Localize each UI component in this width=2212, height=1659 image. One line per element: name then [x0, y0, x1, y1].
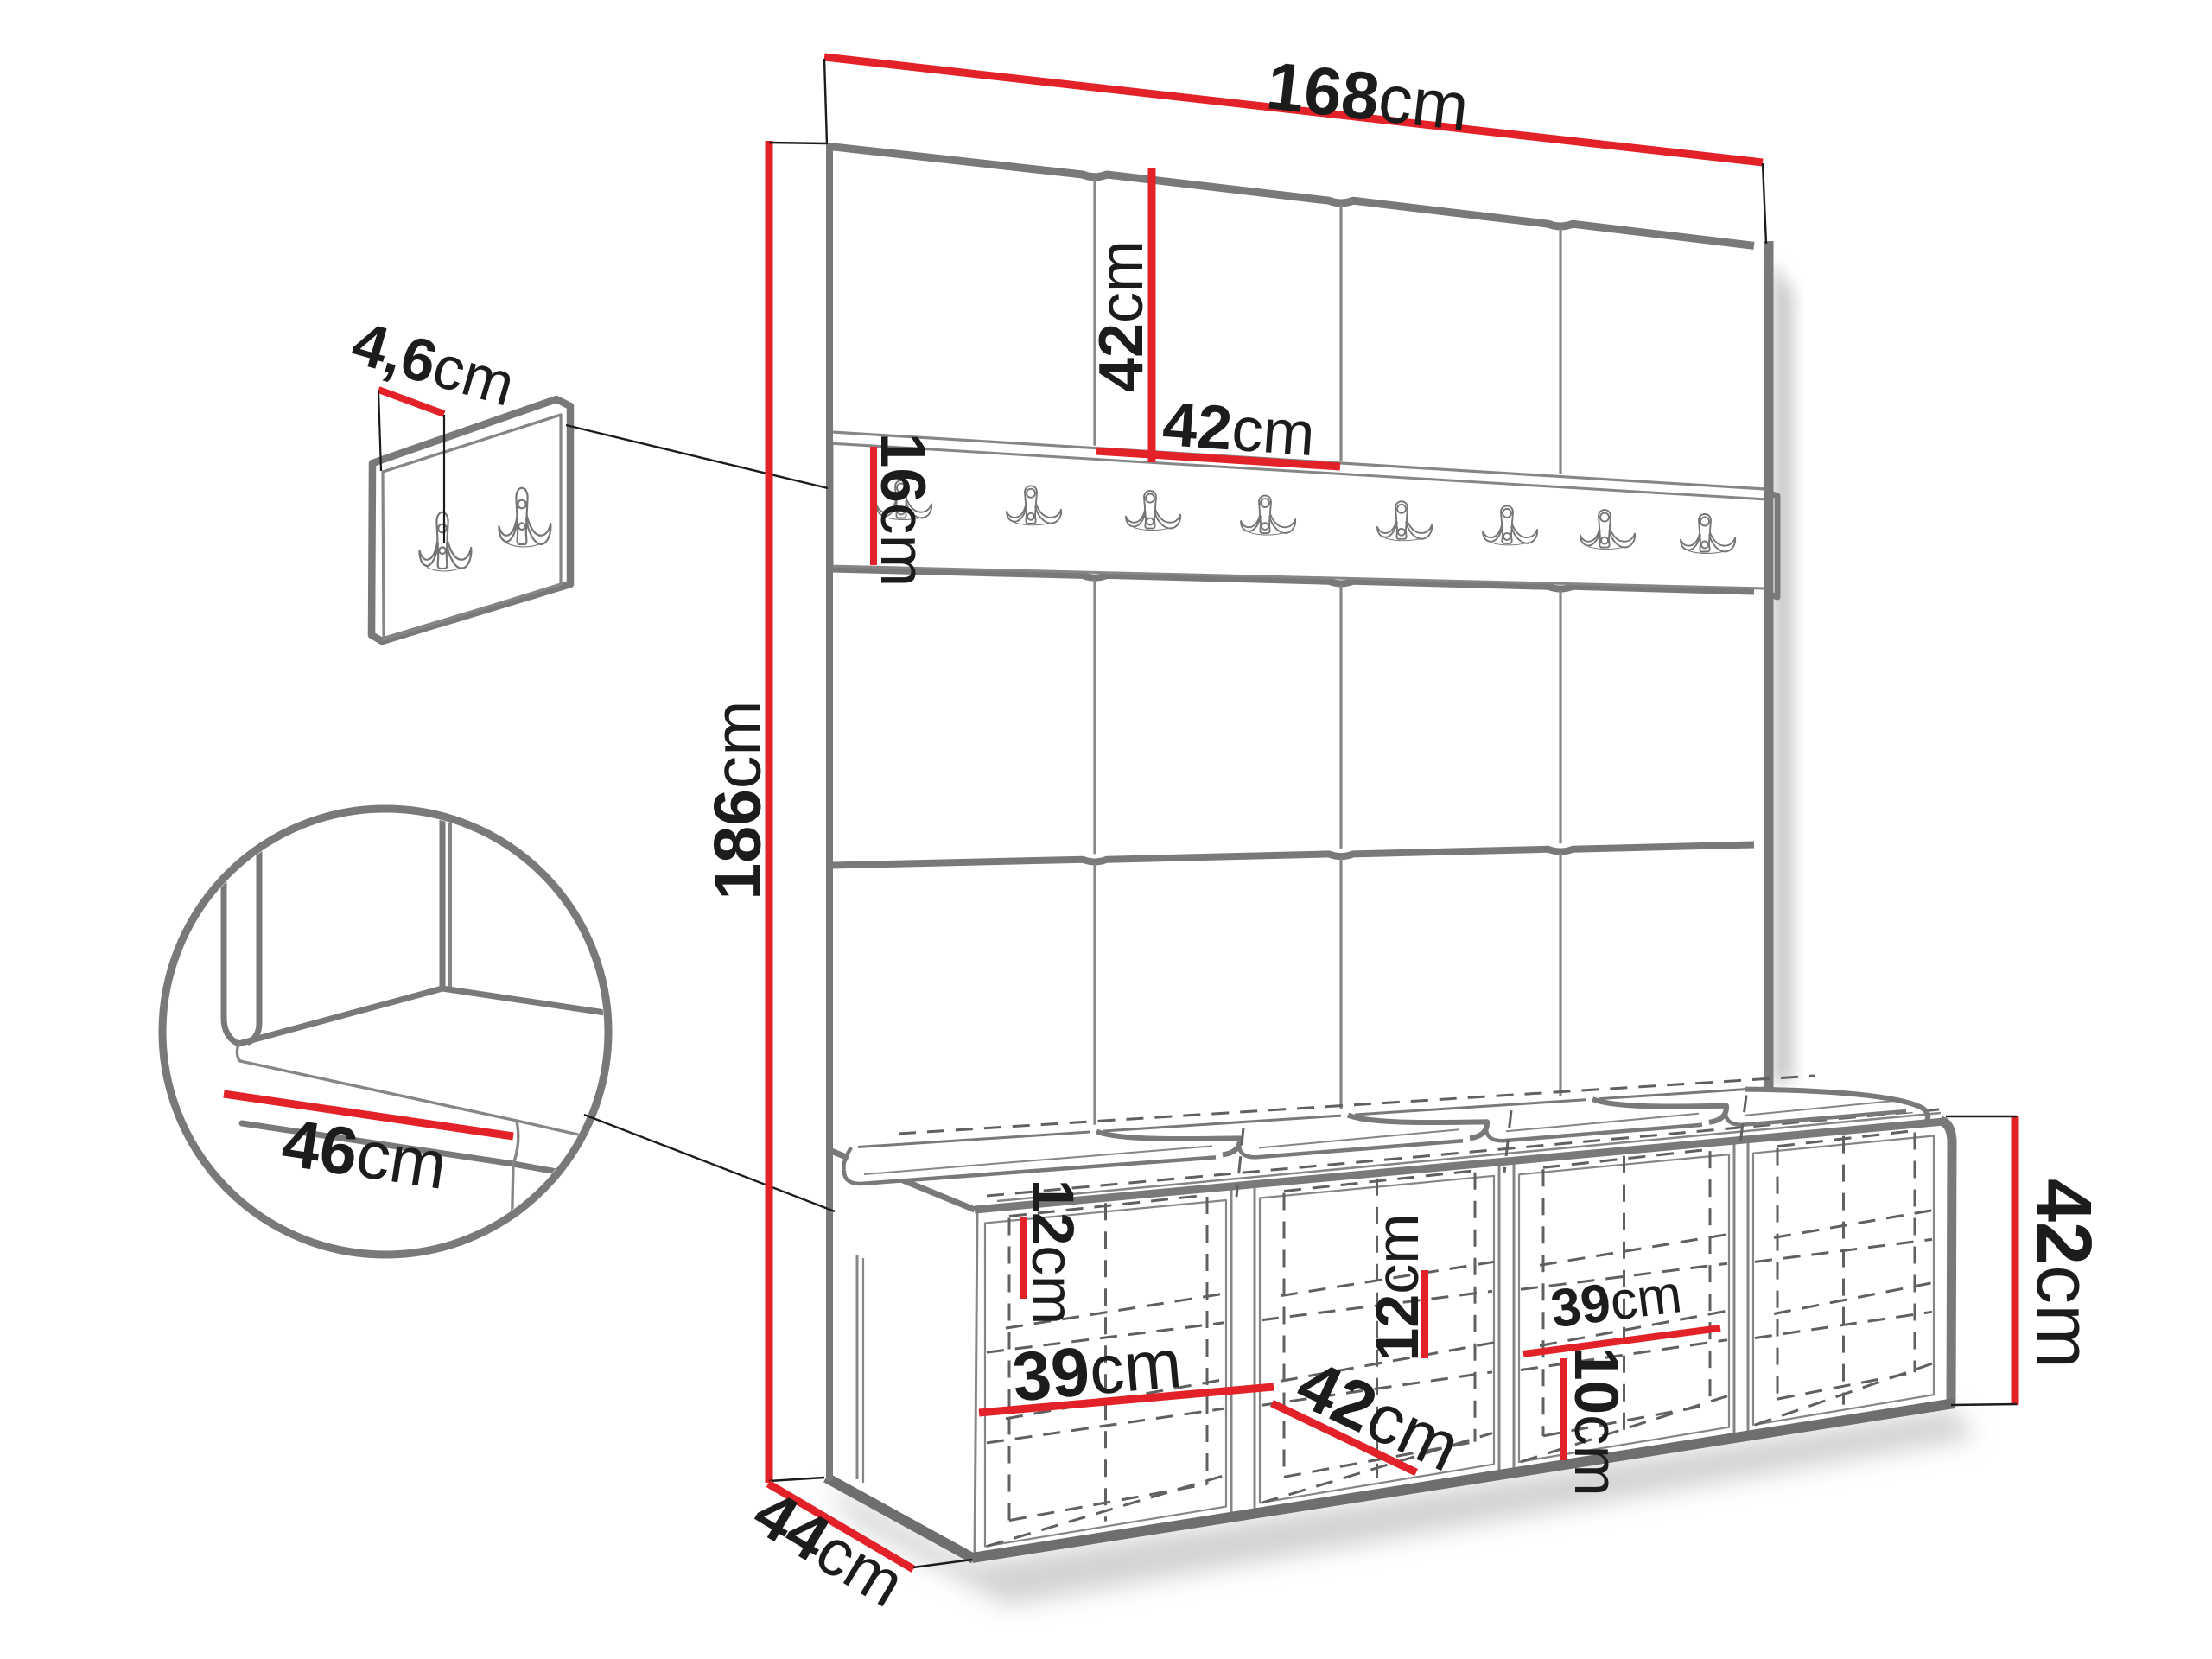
- svg-text:39cm: 39cm: [1009, 1325, 1185, 1416]
- svg-text:186cm: 186cm: [701, 700, 775, 899]
- svg-text:16cm: 16cm: [868, 433, 938, 588]
- svg-text:42cm: 42cm: [1160, 390, 1317, 469]
- svg-text:42cm: 42cm: [1087, 240, 1156, 392]
- svg-text:12cm: 12cm: [1363, 1213, 1431, 1361]
- svg-text:12cm: 12cm: [1020, 1179, 1086, 1325]
- svg-text:42cm: 42cm: [2020, 1179, 2107, 1369]
- svg-text:10cm: 10cm: [1561, 1346, 1630, 1497]
